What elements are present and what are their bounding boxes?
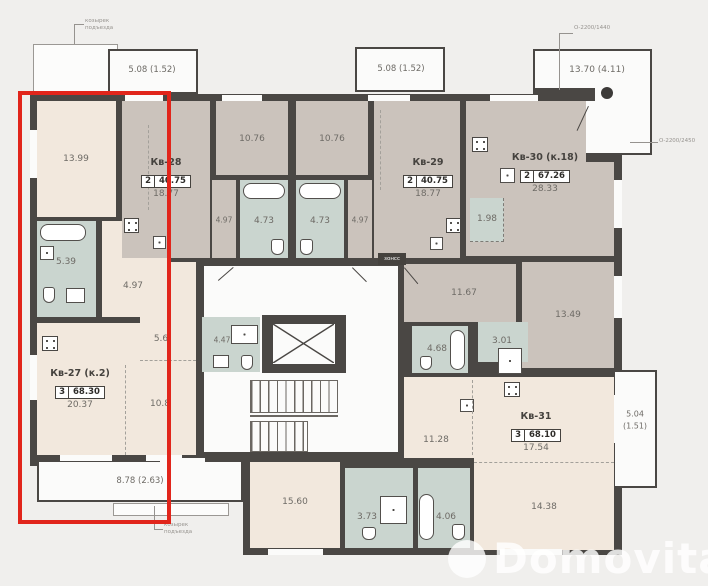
apartment-area-box: 368.10 <box>511 429 561 442</box>
toilet-icon <box>420 356 432 370</box>
window <box>614 395 622 443</box>
window <box>368 95 410 101</box>
balcony-label: 5.08 (1.52) <box>377 64 424 74</box>
room-area-label: 1.98 <box>477 214 497 224</box>
balcony-label: 5.08 (1.52) <box>128 65 175 75</box>
apartment-name: Кв-29 <box>383 157 473 168</box>
canopy-callout-bottom: козырек подъезда <box>164 522 192 536</box>
shower-icon <box>498 348 522 374</box>
balcony-label: 5.04 <box>626 410 644 419</box>
callout-line <box>74 24 75 44</box>
apartment-name: Кв-31 <box>491 411 581 422</box>
apartment-total-area: 67.26 <box>534 171 569 182</box>
watermark: Domovita <box>448 534 708 583</box>
callout-line <box>559 33 560 90</box>
apartment-area-box: 267.26 <box>520 170 570 183</box>
watermark-text: Domovita <box>493 534 708 583</box>
room-area-label: 4.47 <box>214 336 231 345</box>
bathtub-icon <box>450 330 465 370</box>
utility-panel-label: зонсс <box>378 253 406 265</box>
sink-icon <box>430 237 443 250</box>
vanity-icon <box>231 325 258 344</box>
stairs-upper-flight <box>250 380 338 413</box>
terrace-column-dot <box>601 87 613 99</box>
room-area-label: 11.28 <box>423 435 449 445</box>
window <box>614 180 622 228</box>
bathtub-icon <box>299 183 341 199</box>
room-area-label: 4.97 <box>352 216 369 225</box>
terrace-label: 13.70 (4.11) <box>569 65 625 75</box>
canopy-callout-line1: козырек <box>85 18 109 24</box>
callout-line <box>560 33 573 34</box>
callout-line <box>630 142 658 143</box>
canopy-callout-line2: подъезда <box>164 529 192 535</box>
stove-icon <box>446 218 461 233</box>
room-area-label: 4.97 <box>216 216 233 225</box>
room-area-label: 3.73 <box>357 512 377 522</box>
partition-dashed-line <box>474 462 614 463</box>
partition-dashed-line <box>472 380 473 455</box>
room-kv30-main-ext <box>586 162 614 256</box>
room-area-label: 4.73 <box>254 216 274 226</box>
toilet-icon <box>300 239 313 255</box>
room-area-label: 10.76 <box>239 134 265 144</box>
apartment-rooms-count: 2 <box>404 176 417 187</box>
canopy-callout-line2: подъезда <box>85 25 113 31</box>
toilet-icon <box>362 527 376 540</box>
callout-line <box>154 529 163 530</box>
balcony-label: (1.51) <box>623 422 647 431</box>
apartment-total-area: 40.75 <box>417 176 452 187</box>
window-spec-callout-right: О-2200/2450 <box>659 138 695 145</box>
room-area-label: 10.76 <box>319 134 345 144</box>
watermark-logo-icon <box>448 540 486 578</box>
bathtub-icon <box>243 183 285 199</box>
stove-icon <box>504 382 520 397</box>
sink-icon <box>213 355 229 368</box>
wall <box>533 88 595 101</box>
bathtub-icon <box>419 494 434 540</box>
room-area-label: 11.67 <box>451 288 477 298</box>
elevator-icon <box>272 323 336 365</box>
apartment-rooms-count: 3 <box>512 430 525 441</box>
stairs-landing-line <box>250 415 338 417</box>
highlight-outline-kv27 <box>18 91 171 524</box>
apartment-total-area: 68.10 <box>525 430 560 441</box>
callout-line <box>75 24 84 25</box>
partition-dashed-line <box>380 110 381 190</box>
apartment-rooms-count: 2 <box>521 171 534 182</box>
window <box>222 95 262 101</box>
stairs-lower-flight <box>250 421 308 452</box>
apartment-living-area: 18.77 <box>383 189 473 199</box>
apartment-info-kv29: Кв-29 240.75 18.77 <box>383 157 473 199</box>
floor-plan: 13.99 5.39 4.97 5.6 10.8 10.76 4.73 4.97… <box>0 0 708 586</box>
canopy-callout-top: козырек подъезда <box>85 18 113 32</box>
toilet-icon <box>241 355 253 370</box>
apartment-info-kv30: Кв-30 (к.18) 267.26 28.33 <box>500 152 590 194</box>
entrance-canopy-outline <box>33 44 118 94</box>
apartment-area-box: 240.75 <box>403 175 453 188</box>
room-area-label: 13.49 <box>555 310 581 320</box>
stove-icon <box>472 137 488 152</box>
room-area-label: 4.73 <box>310 216 330 226</box>
room-area-label: 4.68 <box>427 344 447 354</box>
apartment-living-area: 28.33 <box>500 184 590 194</box>
apartment-living-area: 17.54 <box>491 443 581 453</box>
apartment-name: Кв-30 (к.18) <box>500 152 590 163</box>
window-spec-callout-top: О-2200/1440 <box>574 25 610 32</box>
window <box>490 95 538 101</box>
room-area-label: 4.06 <box>436 512 456 522</box>
shower-icon <box>380 496 407 524</box>
toilet-icon <box>271 239 284 255</box>
room-area-label: 3.01 <box>492 336 512 346</box>
room-area-label: 15.60 <box>282 497 308 507</box>
window <box>614 276 622 318</box>
window <box>268 549 323 555</box>
apartment-info-kv31: Кв-31 368.10 17.54 <box>491 411 581 453</box>
room-area-label: 14.38 <box>531 502 557 512</box>
